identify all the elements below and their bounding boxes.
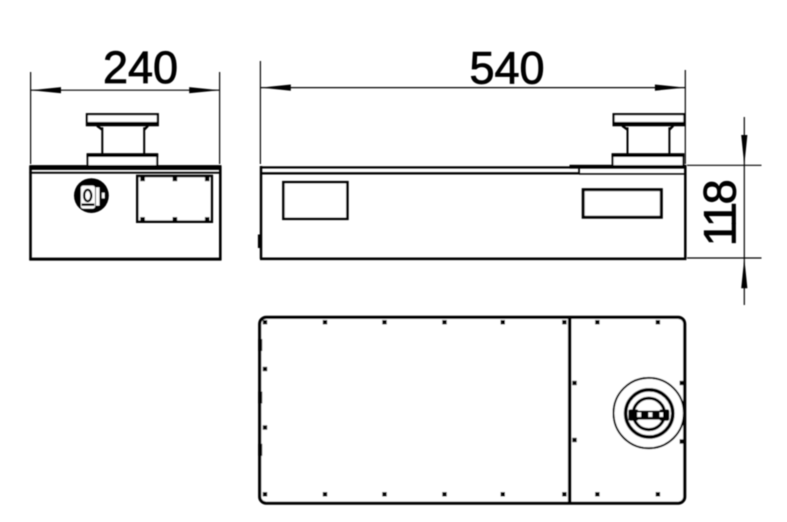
svg-text:240: 240 xyxy=(103,42,178,93)
svg-text:118: 118 xyxy=(695,180,746,246)
svg-text:540: 540 xyxy=(469,43,544,94)
